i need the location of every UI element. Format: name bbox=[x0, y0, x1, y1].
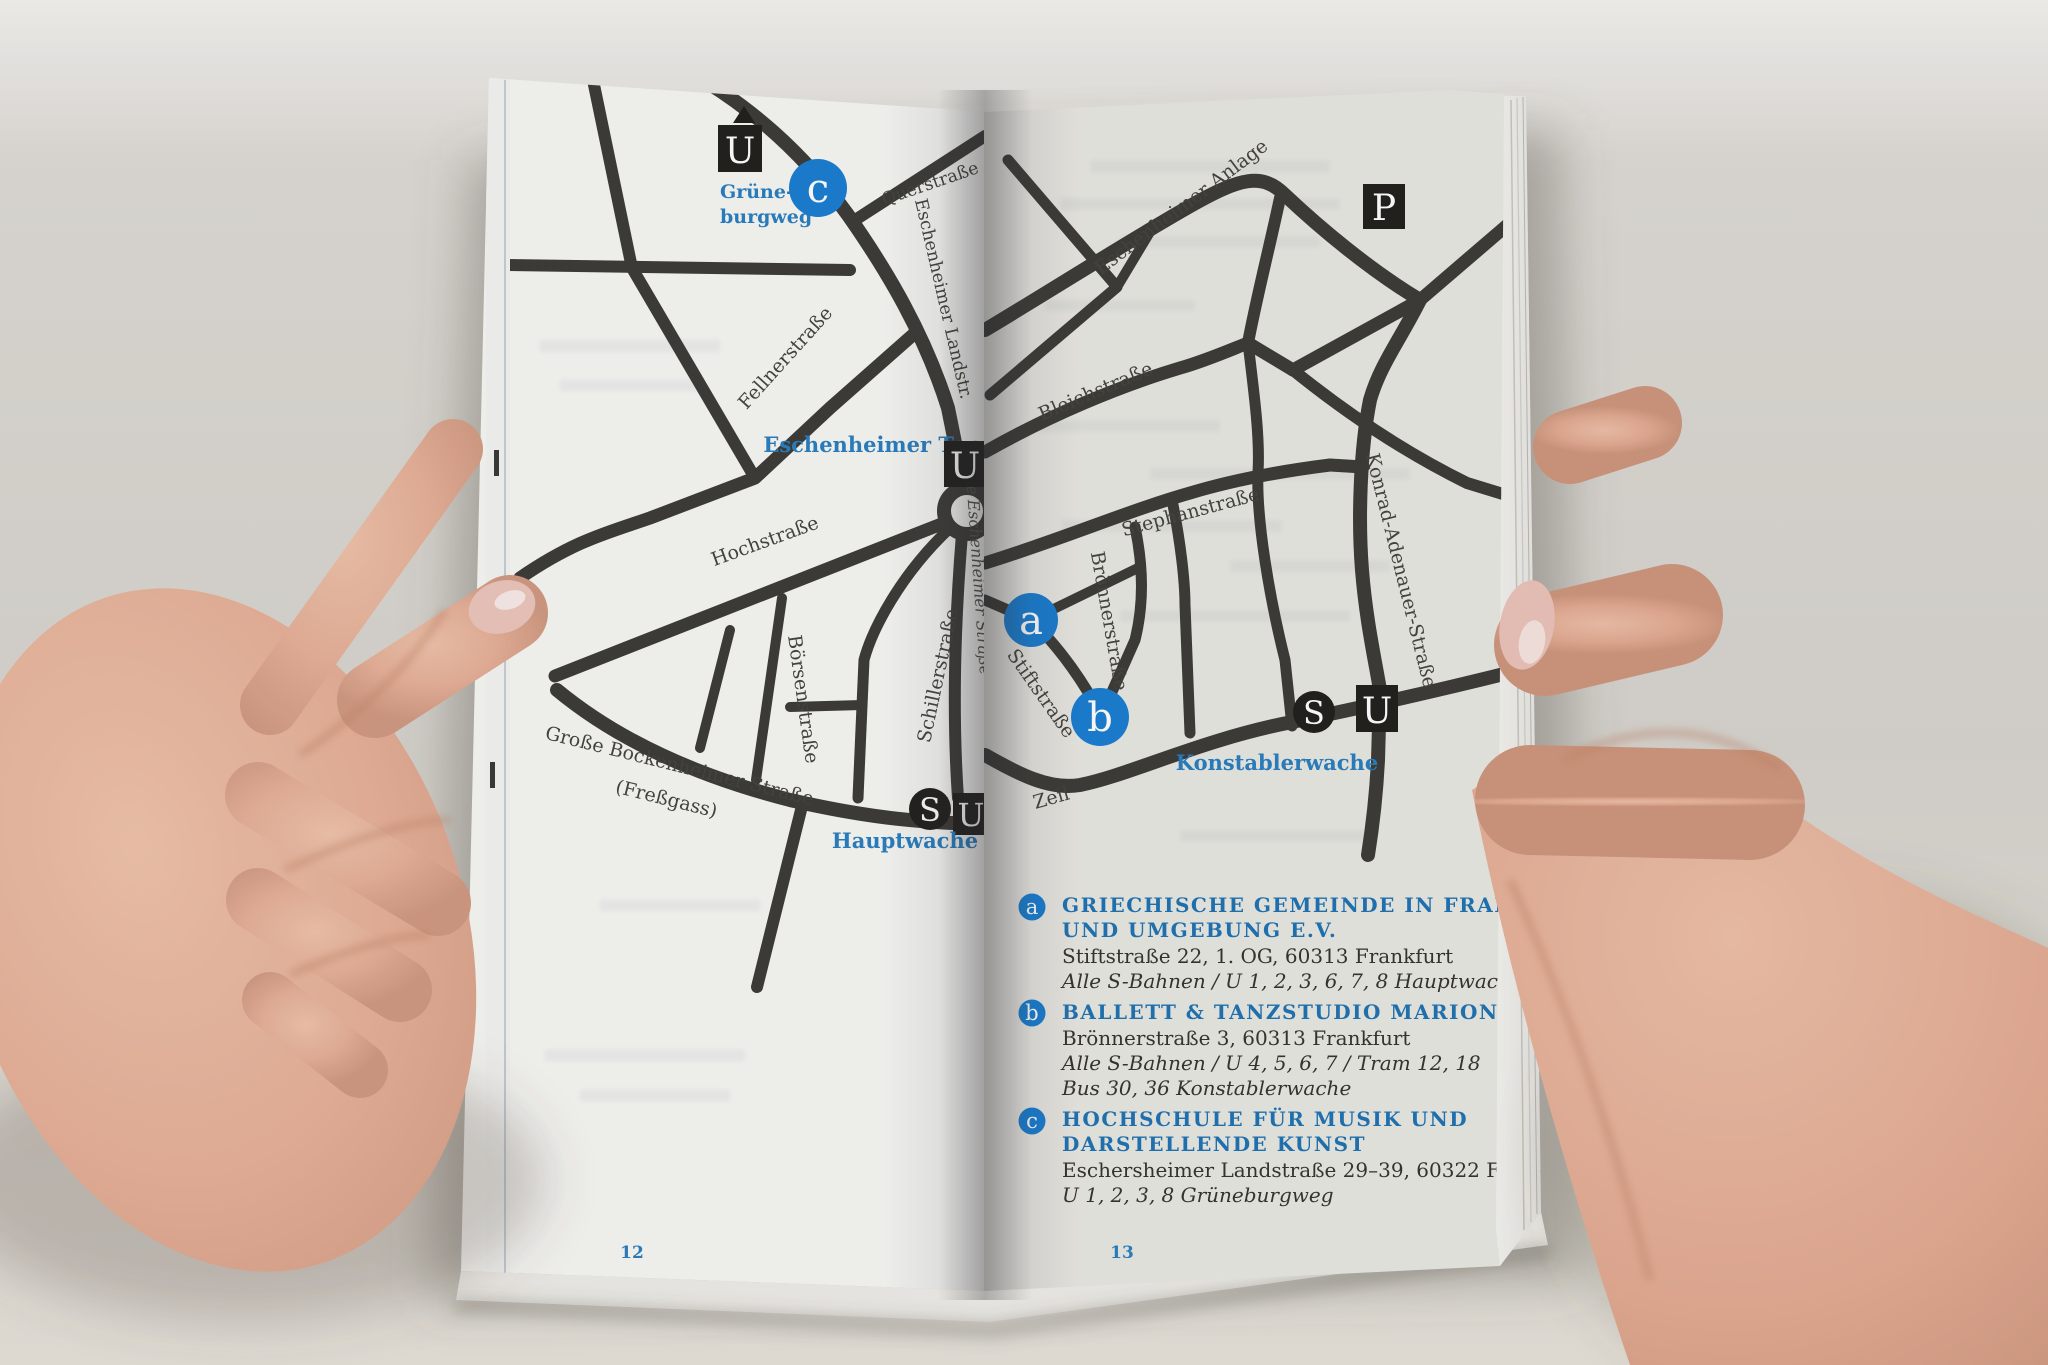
vignette bbox=[0, 0, 2048, 1365]
scene: U Grüne- burgweg c Querstraße Eschenheim… bbox=[0, 0, 2048, 1365]
photo-of-open-map-booklet: U Grüne- burgweg c Querstraße Eschenheim… bbox=[0, 0, 2048, 1365]
